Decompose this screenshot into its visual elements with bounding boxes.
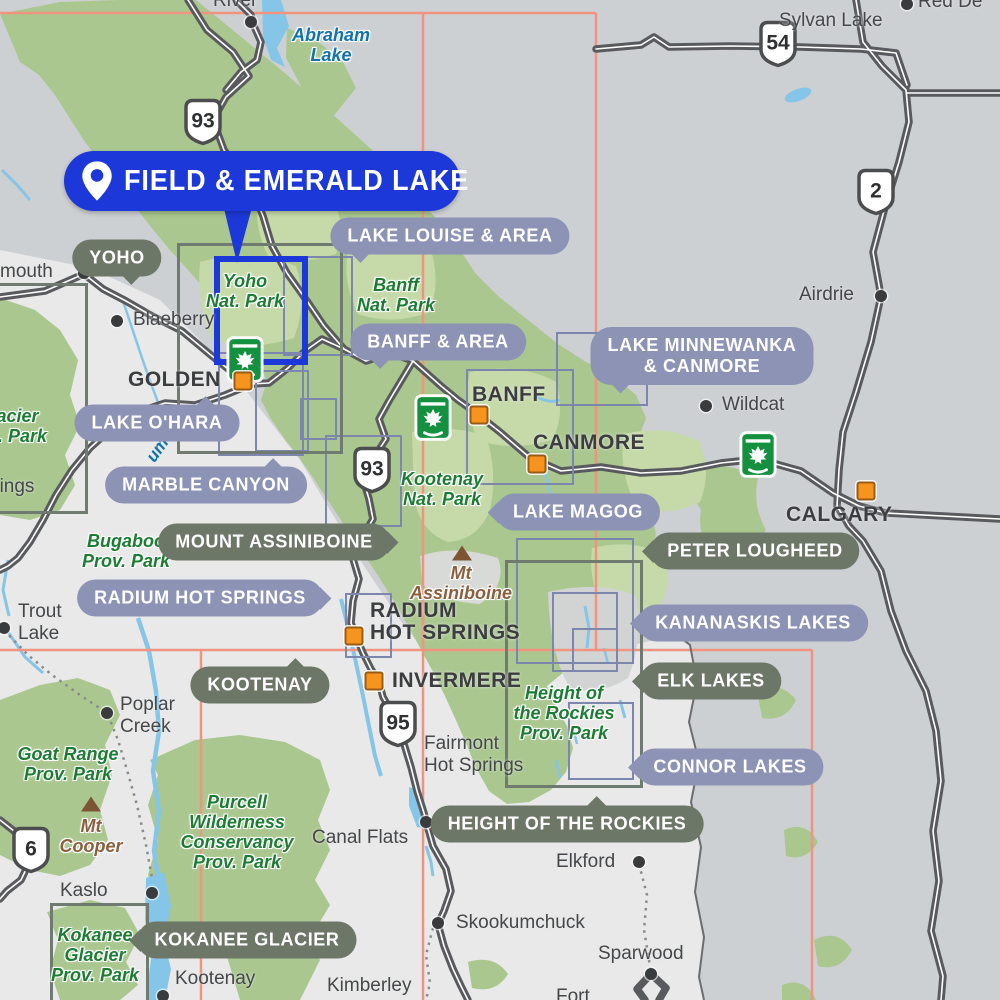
mountain-label-line: Cooper (60, 836, 123, 856)
city-label-line: HOT SPRINGS (370, 622, 520, 644)
town-label-airdrie: Airdrie (799, 284, 854, 306)
town-label-fort: Fort (556, 986, 590, 1000)
park-label-line: Purcell (180, 792, 293, 812)
highway-shield-93-0: 93 (181, 97, 225, 152)
town-marker-kootenay (157, 990, 169, 1000)
region-pill-kootenay[interactable]: KOOTENAY (190, 667, 329, 704)
svg-text:93: 93 (191, 110, 214, 133)
park-label-line: Prov. Park (513, 723, 614, 743)
town-label-line: Lake (18, 623, 62, 645)
svg-text:93: 93 (360, 458, 383, 481)
park-label-line: Yoho (206, 271, 284, 291)
park-label-line: Nat. Park (206, 291, 284, 311)
park-label-line: Nat. Park (401, 489, 483, 509)
town-label-wildcat: Wildcat (722, 394, 784, 416)
park-label-line: the Rockies (513, 703, 614, 723)
town-label-kimberley: Kimberley (327, 975, 411, 997)
mountain-label-mt-cooper: MtCooper (60, 816, 123, 856)
region-pill-yoho[interactable]: YOHO (72, 240, 161, 277)
town-label-elkford: Elkford (556, 851, 615, 873)
region-pill-banff-area[interactable]: BANFF & AREA (350, 324, 526, 361)
town-label-line: Fort (556, 986, 590, 1000)
town-label-sylvan-lake: Sylvan Lake (779, 10, 883, 32)
region-pill-elk-lakes[interactable]: ELK LAKES (640, 663, 781, 700)
park-label-banff-nat-park: BanffNat. Park (357, 275, 435, 315)
town-label-mouth: mouth (0, 261, 53, 283)
town-label-kaslo: Kaslo (60, 880, 108, 902)
town-label-river: River (213, 0, 257, 12)
national-park-gate-icon (739, 431, 777, 484)
town-label-line: Elkford (556, 851, 615, 873)
park-label-line: Height of (513, 683, 614, 703)
park-label-purcell-wilderness-conservancy-prov-park: PurcellWildernessConservancyProv. Park (180, 792, 293, 872)
region-pill-label: LAKE LOUISE & AREA (347, 226, 552, 247)
svg-text:95: 95 (386, 712, 410, 735)
town-label-line: Trout (18, 601, 62, 623)
region-pill-label: YOHO (89, 248, 144, 269)
map-canvas[interactable]: FIELD & EMERALD LAKE 9354293956GOLDENBAN… (0, 0, 1000, 1000)
region-pill-label: LAKE MINNEWANKA (608, 335, 797, 356)
city-label-line: GOLDEN (128, 369, 221, 391)
svg-text:6: 6 (25, 838, 37, 861)
location-pin-icon (80, 160, 114, 202)
city-label-invermere: INVERMERE (392, 670, 521, 692)
region-pill-label: MOUNT ASSINIBOINE (175, 532, 373, 553)
region-pill-kananaskis-lakes[interactable]: KANANASKIS LAKES (638, 605, 868, 642)
park-label-line: Glacier (51, 945, 139, 965)
region-pill-kokanee-glacier[interactable]: KOKANEE GLACIER (137, 922, 356, 959)
city-marker-banff (470, 406, 489, 425)
town-label-line: Canal Flats (312, 827, 408, 849)
town-label-line: Blaeberry (133, 309, 214, 331)
park-label-line: Nat. Park (0, 426, 47, 446)
region-pill-label: LAKE O'HARA (92, 413, 223, 434)
region-pill-marble-canyon[interactable]: MARBLE CANYON (105, 467, 307, 504)
town-label-line: Skookumchuck (456, 912, 585, 934)
town-label-line: Kootenay (175, 968, 255, 990)
highway-shield-2-2: 2 (854, 167, 898, 222)
town-marker-skookumchuck (432, 917, 444, 929)
park-label-goat-range-prov-park: Goat RangeProv. Park (17, 744, 118, 784)
town-label-red-deer: Red De (918, 0, 982, 13)
town-label-line: Hot Springs (424, 755, 523, 777)
town-label-canal-flats: Canal Flats (312, 827, 408, 849)
town-label-line: Sparwood (598, 943, 684, 965)
park-label-yoho-nat-park: YohoNat. Park (206, 271, 284, 311)
park-label-line: Lake (292, 45, 370, 65)
park-label-line: Prov. Park (180, 852, 293, 872)
town-marker-river (245, 16, 257, 28)
town-label-line: Kimberley (327, 975, 411, 997)
town-label-line: River (213, 0, 257, 12)
park-label-line: Prov. Park (51, 965, 139, 985)
park-label-line: Glacier (0, 406, 47, 426)
mountain-label-line: Mt (410, 563, 512, 583)
town-marker-wildcat (700, 400, 712, 412)
park-label-glacier-nat-park: GlacierNat. Park (0, 406, 47, 446)
town-label-line: Fairmont (424, 733, 523, 755)
city-marker-canmore (528, 455, 547, 474)
region-pill-mount-assiniboine[interactable]: MOUNT ASSINIBOINE (158, 524, 390, 561)
town-label-skookumchuck: Skookumchuck (456, 912, 585, 934)
park-label-line: Abraham (292, 25, 370, 45)
town-label-line: Red De (918, 0, 982, 13)
callout-label: FIELD & EMERALD LAKE (124, 165, 469, 198)
town-marker-blaeberry (111, 315, 123, 327)
city-label-line: RADIUM (370, 600, 520, 622)
city-label-line: CANMORE (533, 432, 645, 454)
town-marker-elkford (633, 856, 645, 868)
region-pill-label: KANANASKIS LAKES (655, 613, 851, 634)
region-pill-label: KOOTENAY (207, 675, 312, 696)
park-label-kokanee-glacier-prov-park: KokaneeGlacierProv. Park (51, 925, 139, 985)
region-pill-label: PETER LOUGHEED (667, 541, 842, 562)
town-label-kootenay: Kootenay (175, 968, 255, 990)
highway-shield-95-4: 95 (376, 699, 420, 754)
park-label-line: Kootenay (401, 469, 483, 489)
town-label-line: Creek (120, 716, 175, 738)
town-label-line: Wildcat (722, 394, 784, 416)
park-label-abraham-lake: AbrahamLake (292, 25, 370, 65)
region-pill-label: KOKANEE GLACIER (154, 930, 339, 951)
town-marker-kaslo (146, 887, 158, 899)
town-label-sparwood: Sparwood (598, 943, 684, 965)
park-label-line: Prov. Park (17, 764, 118, 784)
city-marker-invermere (365, 672, 384, 691)
region-pill-label: RADIUM HOT SPRINGS (94, 588, 306, 609)
region-pill-connor-lakes[interactable]: CONNOR LAKES (636, 749, 823, 786)
svg-text:2: 2 (870, 180, 882, 203)
park-label-line: Prov. Park (82, 551, 170, 571)
national-park-gate-icon (414, 394, 452, 447)
park-label-line: Nat. Park (357, 295, 435, 315)
city-label-banff: BANFF (472, 384, 546, 406)
city-marker-golden (234, 372, 253, 391)
mountain-label-line: Mt (60, 816, 123, 836)
mountain-label-mt-assiniboine: MtAssiniboine (410, 563, 512, 603)
town-label-springs: Springs (0, 476, 34, 498)
park-label-line: Bugaboo (82, 531, 170, 551)
region-pill-label: & CANMORE (644, 356, 760, 377)
region-pill-lake-louise-area[interactable]: LAKE LOUISE & AREA (330, 218, 569, 255)
town-label-poplar-creek: PoplarCreek (120, 694, 175, 738)
region-pill-lake-o-hara[interactable]: LAKE O'HARA (75, 405, 240, 442)
town-label-blaeberry: Blaeberry (133, 309, 214, 331)
town-label-line: Poplar (120, 694, 175, 716)
region-pill-label: HEIGHT OF THE ROCKIES (448, 814, 687, 835)
region-pill-label: BANFF & AREA (367, 332, 509, 353)
town-label-line: Kaslo (60, 880, 108, 902)
town-label-fairmont-hot-springs: FairmontHot Springs (424, 733, 523, 777)
city-marker-calgary (857, 482, 876, 501)
mountain-label-line: Assiniboine (410, 583, 512, 603)
city-label-golden: GOLDEN (128, 369, 221, 391)
park-label-kootenay-nat-park: KootenayNat. Park (401, 469, 483, 509)
highway-shield-6-5: 6 (9, 825, 53, 880)
region-pill-lake-minnewanka-canmore[interactable]: LAKE MINNEWANKA& CANMORE (591, 327, 814, 385)
town-label-line: mouth (0, 261, 53, 283)
region-pill-peter-lougheed[interactable]: PETER LOUGHEED (650, 533, 859, 570)
region-pill-lake-magog[interactable]: LAKE MAGOG (496, 494, 660, 531)
city-marker-radium-hot-springs (345, 627, 364, 646)
city-label-radium-hot-springs: RADIUMHOT SPRINGS (370, 600, 520, 644)
mountain-peak-icon-mt-assiniboine (452, 546, 472, 561)
city-label-line: BANFF (472, 384, 546, 406)
town-marker-sparwood (645, 968, 657, 980)
highway-shield-93-3: 93 (350, 445, 394, 500)
town-label-trout-lake: TroutLake (18, 601, 62, 645)
region-pill-label: CONNOR LAKES (653, 757, 806, 778)
town-marker-poplar-creek (101, 707, 113, 719)
city-label-canmore: CANMORE (533, 432, 645, 454)
town-marker-airdrie (875, 290, 887, 302)
park-label-bugaboo-prov-park: BugabooProv. Park (82, 531, 170, 571)
region-pill-label: LAKE MAGOG (513, 502, 643, 523)
svg-text:54: 54 (766, 32, 790, 55)
region-pill-label: MARBLE CANYON (122, 475, 290, 496)
region-pill-label: ELK LAKES (657, 671, 764, 692)
town-label-line: Springs (0, 476, 34, 498)
park-label-line: Wilderness (180, 812, 293, 832)
park-label-line: Goat Range (17, 744, 118, 764)
town-label-line: Airdrie (799, 284, 854, 306)
park-label-line: Kokanee (51, 925, 139, 945)
park-label-line: Conservancy (180, 832, 293, 852)
city-label-calgary: CALGARY (786, 504, 893, 526)
selected-region-callout[interactable]: FIELD & EMERALD LAKE (64, 151, 460, 211)
city-label-line: CALGARY (786, 504, 893, 526)
town-label-line: Sylvan Lake (779, 10, 883, 32)
mountain-peak-icon-mt-cooper (81, 797, 101, 812)
park-label-height-of-the-rockies-prov-park: Height ofthe RockiesProv. Park (513, 683, 614, 743)
park-label-line: Banff (357, 275, 435, 295)
city-label-line: INVERMERE (392, 670, 521, 692)
region-pill-height-of-the-rockies[interactable]: HEIGHT OF THE ROCKIES (431, 806, 704, 843)
region-pill-radium-hot-springs[interactable]: RADIUM HOT SPRINGS (77, 580, 323, 617)
